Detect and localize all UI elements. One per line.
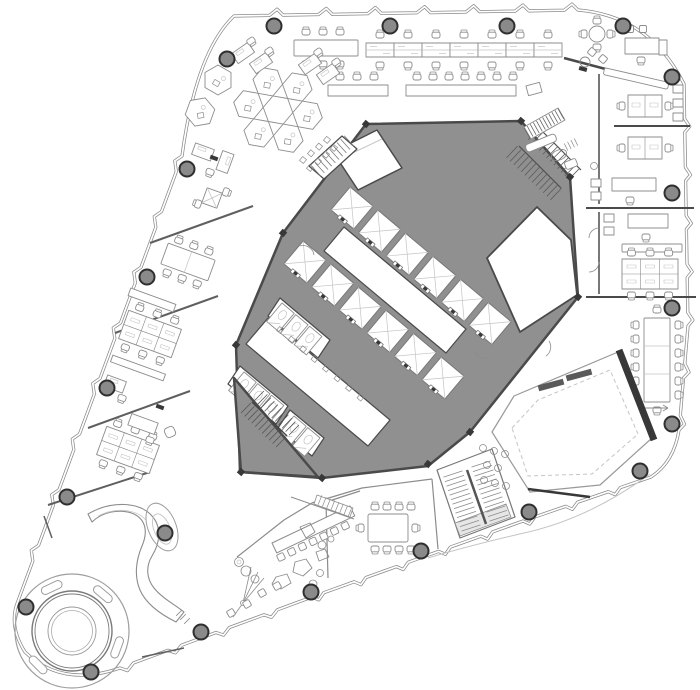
plan-rect: [681, 322, 683, 328]
plan-chair: [544, 62, 552, 70]
plan-rect: [304, 116, 311, 122]
plan-rect: [356, 525, 358, 531]
plan-rect: [631, 364, 633, 370]
plan-rect: [461, 68, 467, 70]
plan-rect: [509, 74, 517, 80]
plan-chair: [631, 335, 639, 343]
plan-rect: [673, 99, 683, 107]
plan-bench-desk: [422, 43, 450, 57]
plan-rect: [445, 74, 453, 80]
plan-rect: [370, 74, 378, 80]
column: [414, 544, 429, 559]
plan-chair: [593, 16, 601, 24]
plan-rect: [665, 292, 673, 298]
plan-chair: [665, 248, 673, 256]
plan-cabinet: [673, 113, 683, 121]
plan-rect: [647, 248, 653, 250]
plan-rect: [371, 72, 377, 74]
plan-chair: [461, 72, 469, 80]
plan-rect: [407, 504, 415, 510]
plan-rect: [594, 16, 600, 18]
plan-rect: [432, 62, 440, 68]
plan-rect: [320, 27, 326, 29]
plan-rect: [372, 552, 378, 554]
plan-chair: [383, 502, 391, 510]
plan-chair: [319, 27, 327, 35]
plan-chair: [627, 248, 635, 256]
plan-rect: [654, 305, 660, 307]
plan-rect: [579, 31, 581, 37]
plan-chair: [675, 349, 683, 357]
plan-rect: [633, 349, 639, 357]
column: [220, 52, 235, 67]
plan-rect: [627, 250, 635, 256]
plan-rect: [432, 32, 440, 38]
plan-rect: [413, 74, 421, 80]
plan-chair: [460, 62, 468, 70]
plan-rect: [627, 292, 635, 298]
plan-rect: [489, 30, 495, 32]
plan-workstations: [622, 248, 678, 300]
plan-bench-desk: [478, 43, 506, 57]
plan-bench-desk: [534, 43, 562, 57]
plan-chair: [631, 349, 639, 357]
plan-rect: [516, 62, 524, 68]
plan-rect: [383, 546, 391, 552]
plan-rect: [353, 74, 361, 80]
plan-cabinet: [604, 227, 614, 235]
plan-chair: [395, 502, 403, 510]
bench-table: [294, 40, 358, 56]
plan-rect: [489, 68, 495, 70]
plan-chair: [383, 546, 391, 554]
plan-rect: [675, 335, 681, 343]
desk-table: [612, 178, 656, 191]
plan-rect: [303, 27, 309, 29]
plan-rect: [591, 192, 601, 200]
plan-rect: [446, 72, 452, 74]
plan-chair: [376, 62, 384, 70]
plan-chair: [432, 62, 440, 70]
counter: [406, 85, 516, 96]
plan-rect: [643, 240, 649, 242]
plan-chair: [376, 30, 384, 38]
plan-chair: [371, 546, 379, 554]
plan-rect: [430, 72, 436, 74]
plan-chair: [370, 72, 378, 80]
plan-rect: [478, 72, 484, 74]
plan-rect: [384, 552, 390, 554]
plan-rect: [631, 336, 633, 342]
plan-chair: [579, 30, 587, 38]
plan-rect: [396, 552, 402, 554]
plan-rect: [646, 250, 654, 256]
column: [616, 19, 631, 34]
plan-chair: [412, 524, 420, 532]
plan-rect: [477, 74, 485, 80]
plan-rect: [675, 377, 681, 385]
plan-chair: [371, 502, 379, 510]
plan-rect: [395, 504, 403, 510]
plan-chair: [488, 30, 496, 38]
plan-chair: [665, 144, 673, 152]
plan-rect: [384, 502, 390, 504]
column: [60, 490, 75, 505]
plan-rect: [675, 363, 681, 371]
plan-stool: [640, 26, 647, 33]
plan-rect: [681, 364, 683, 370]
plan-rect: [358, 524, 364, 532]
plan-rect: [405, 30, 411, 32]
plan-rect: [675, 391, 681, 399]
plan-rect: [395, 546, 403, 552]
plan-rect: [494, 72, 500, 74]
plan-rect: [617, 145, 619, 151]
plan-rect: [544, 32, 552, 38]
plan-bench-desk: [366, 43, 562, 57]
plan-rect: [604, 214, 614, 222]
plan-rect: [681, 378, 683, 384]
plan-rect: [681, 350, 683, 356]
column: [140, 270, 155, 285]
plan-rect: [488, 32, 496, 38]
column: [194, 625, 209, 640]
column: [100, 381, 115, 396]
plan-chair: [429, 72, 437, 80]
plan-rect: [613, 31, 615, 37]
plan-rect: [671, 145, 673, 151]
column: [180, 162, 195, 177]
plan-rect: [460, 62, 468, 68]
column: [522, 505, 537, 520]
plan-chair: [675, 391, 683, 399]
plan-rect: [433, 30, 439, 32]
plan-cabinet: [604, 214, 614, 222]
plan-rect: [516, 32, 524, 38]
plan-rect: [665, 102, 671, 110]
plan-rect: [631, 322, 633, 328]
plan-rect: [404, 62, 412, 68]
plan-chair: [631, 363, 639, 371]
plan-chair: [432, 30, 440, 38]
plan-rect: [264, 82, 271, 88]
plan-chair: [477, 72, 485, 80]
plan-chair: [675, 363, 683, 371]
column: [665, 70, 680, 85]
plan-rect: [665, 144, 671, 152]
plan-rect: [633, 335, 639, 343]
plan-chair: [407, 502, 415, 510]
plan-rect: [396, 502, 402, 504]
plan-rect: [644, 318, 670, 402]
plan-chair: [302, 27, 310, 35]
plan-rect: [493, 74, 501, 80]
plan-chair: [516, 30, 524, 38]
plan-rect: [383, 504, 391, 510]
desk-return: [659, 40, 667, 55]
plan-chair: [675, 377, 683, 385]
plan-rect: [627, 203, 633, 205]
plan-rect: [631, 350, 633, 356]
plan-rect: [628, 298, 634, 300]
plan-rect: [376, 62, 384, 68]
plan-rect: [302, 29, 310, 35]
plan-rect: [414, 72, 420, 74]
plan-rect: [404, 32, 412, 38]
column: [19, 600, 34, 615]
plan-rect: [319, 29, 327, 35]
plan-rect: [460, 32, 468, 38]
plan-rect: [255, 133, 262, 139]
plan-rect: [405, 68, 411, 70]
plan-chair: [617, 144, 625, 152]
plan-rect: [418, 525, 420, 531]
column: [84, 665, 99, 680]
plan-chair: [544, 30, 552, 38]
plan-rect: [619, 102, 625, 110]
plan-rect: [510, 72, 516, 74]
plan-rect: [376, 32, 384, 38]
plan-chair: [627, 292, 635, 300]
plan-rect: [642, 234, 650, 240]
column: [383, 19, 398, 34]
plan-chair: [493, 72, 501, 80]
plan-rect: [371, 504, 379, 510]
plan-rect: [462, 72, 468, 74]
plan-rect: [429, 74, 437, 80]
plan-rect: [591, 179, 601, 187]
plan-circle: [589, 26, 605, 42]
plan-rect: [377, 30, 383, 32]
plan-rect: [461, 30, 467, 32]
plan-rect: [372, 502, 378, 504]
column: [267, 19, 282, 34]
plan-rect: [544, 62, 552, 68]
plan-rect: [617, 103, 619, 109]
plan-rect: [665, 250, 673, 256]
plan-rect: [619, 144, 625, 152]
plan-rect: [647, 298, 653, 300]
column: [665, 417, 680, 432]
plan-rect: [488, 62, 496, 68]
plan-chair: [607, 30, 615, 38]
plan-bench-desk: [506, 43, 534, 57]
plan-cabinet: [673, 85, 683, 121]
plan-rect: [607, 30, 613, 38]
plan-chair: [653, 305, 661, 313]
plan-rect: [581, 30, 587, 38]
plan-cabinet: [591, 179, 601, 187]
plan-rect: [675, 321, 681, 329]
plan-chair: [642, 234, 650, 242]
plan-chair: [626, 197, 634, 205]
plan-chair: [665, 292, 673, 300]
plan-cabinet: [673, 85, 683, 93]
plan-bench-desk: [394, 43, 422, 57]
plan-chair: [516, 62, 524, 70]
plan-rect: [604, 227, 614, 235]
plan-chair: [637, 57, 645, 65]
plan-rect: [461, 74, 469, 80]
column: [665, 186, 680, 201]
plan-rect: [412, 524, 418, 532]
plan-chair: [413, 72, 421, 80]
plan-rect: [517, 68, 523, 70]
plan-bench-desk: [366, 43, 394, 57]
plan-rect: [654, 413, 660, 415]
plan-rect: [517, 30, 523, 32]
plan-chair: [460, 30, 468, 38]
plan-rect: [293, 87, 300, 93]
column: [665, 301, 680, 316]
plan-rect: [640, 26, 647, 33]
plan-chair: [302, 27, 344, 35]
column: [158, 526, 173, 541]
plan-chair: [675, 321, 683, 329]
plan-chair: [665, 102, 673, 110]
plan-rect: [638, 63, 644, 65]
plan-chair: [617, 102, 625, 110]
plan-rect: [628, 248, 634, 250]
plan-rect: [197, 112, 204, 118]
meeting-table-8: [368, 514, 408, 542]
plan-bench-desk: [450, 43, 478, 57]
desk-table: [628, 214, 668, 228]
counter: [328, 85, 388, 96]
plan-rect: [681, 392, 683, 398]
plan-rect: [673, 113, 683, 121]
plan-chair: [646, 248, 654, 256]
column: [304, 585, 319, 600]
plan-rect: [593, 18, 601, 24]
plan-chair: [631, 321, 639, 329]
plan-chair: [646, 292, 654, 300]
plan-chair: [509, 72, 517, 80]
floor-plan-page: [0, 0, 700, 690]
plan-chair: [353, 72, 361, 80]
plan-rect: [354, 72, 360, 74]
plan-chair: [445, 72, 453, 80]
plan-rect: [545, 30, 551, 32]
plan-rect: [675, 349, 681, 357]
plan-rect: [633, 321, 639, 329]
plan-rect: [433, 68, 439, 70]
plan-rect: [626, 197, 634, 203]
floor-plan-svg: [0, 0, 700, 690]
plan-chair: [336, 27, 344, 35]
plan-chair: [488, 62, 496, 70]
column: [633, 464, 648, 479]
plan-cabinet: [673, 99, 683, 107]
plan-rect: [337, 27, 343, 29]
plan-rect: [681, 336, 683, 342]
plan-chair: [404, 62, 412, 70]
plan-rect: [408, 502, 414, 504]
plan-chair: [356, 524, 364, 532]
plan-chair: [336, 72, 378, 80]
plan-rect: [666, 248, 672, 250]
plan-rect: [545, 68, 551, 70]
plan-chair: [395, 546, 403, 554]
plan-rect: [633, 363, 639, 371]
plan-rect: [377, 68, 383, 70]
plan-cabinet: [591, 192, 601, 200]
desk-table: [625, 38, 659, 54]
plan-chair: [404, 30, 412, 38]
plan-chair: [675, 335, 683, 343]
plan-rect: [244, 105, 251, 111]
plan-rect: [646, 292, 654, 298]
plan-rect: [336, 29, 344, 35]
plan-rect: [371, 546, 379, 552]
plan-rect: [637, 57, 645, 63]
plan-rect: [673, 85, 683, 93]
plan-rect: [653, 307, 661, 313]
column: [500, 19, 515, 34]
plan-rect: [284, 139, 291, 145]
